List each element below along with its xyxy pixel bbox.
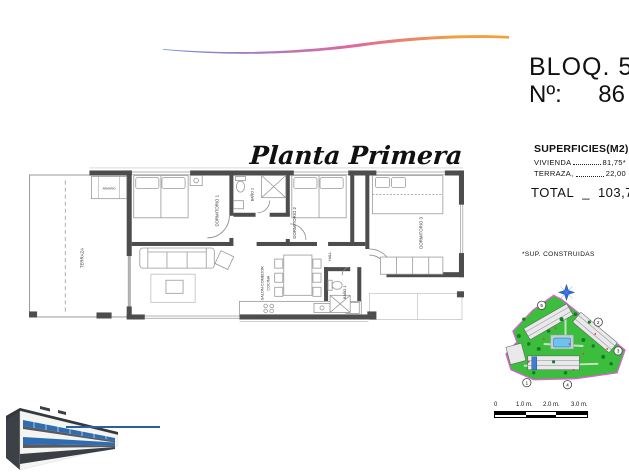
surfaces-title: SUPERFICIES(M2)	[534, 143, 626, 155]
room-label-terraza: TERRAZA	[79, 248, 84, 268]
render-accent-line	[66, 426, 160, 428]
dotted-leader	[576, 176, 604, 177]
block-badge-4: 4	[566, 382, 569, 388]
scale-label-1: 1.0 m.	[516, 402, 533, 408]
room-label-bano2: BAÑO 2	[250, 188, 255, 201]
room-label-hall: HALL	[328, 252, 332, 261]
surface-value: 81,75*	[603, 158, 627, 167]
surface-label: TERRAZA,	[534, 169, 574, 178]
render-roof-box	[40, 406, 50, 412]
block-badge-2: 2	[597, 320, 600, 326]
surfaces-footnote: *SUP. CONSTRUIDAS	[522, 251, 595, 258]
swoosh-curve	[163, 35, 509, 54]
render-roof-box	[58, 410, 66, 415]
block-label: BLOQ. 5	[529, 54, 625, 80]
compass-icon	[559, 284, 575, 300]
brochure-page: BLOQ. 5 Nº: 86 SUPERFICIES(M2) VIVIENDA …	[0, 0, 629, 476]
room-label-salon-line2: COCINA	[267, 275, 271, 290]
block-badge-5: 5	[540, 303, 543, 309]
building-render	[0, 392, 132, 476]
surface-row-terraza: TERRAZA, 22,00	[534, 169, 626, 178]
scale-label-2: 2.0 m.	[543, 402, 560, 408]
dotted-leader	[573, 164, 600, 165]
surfaces-panel: SUPERFICIES(M2) VIVIENDA 81,75* TERRAZA,…	[534, 143, 626, 178]
pool	[554, 338, 571, 347]
block-badge-3: 3	[617, 349, 620, 355]
room-label-armario: ARMARIO	[103, 187, 117, 191]
scale-label-3: 3.0 m.	[571, 402, 588, 408]
total-row: TOTAL _ 103,75	[531, 185, 625, 200]
surface-value: 22,00	[606, 169, 626, 178]
floor-plan: TERRAZA ARMARIO DORMITORIO 1 BAÑO 2 DORM…	[26, 160, 464, 334]
number-value: 86	[598, 82, 625, 107]
unit-header: BLOQ. 5 Nº: 86	[529, 54, 625, 107]
scale-bar-graphic	[494, 411, 588, 418]
total-value: 103,75	[598, 185, 629, 200]
scale-label-0: 0	[494, 402, 497, 408]
room-label-dormitorio2: DORMITORIO 2	[292, 206, 297, 238]
scale-bar: 0 1.0 m. 2.0 m. 3.0 m.	[492, 402, 596, 426]
total-label: TOTAL	[531, 185, 574, 200]
room-label-dormitorio1: DORMITORIO 1	[214, 194, 219, 226]
gradient-swoosh	[160, 26, 512, 62]
surface-label: VIVIENDA	[534, 158, 571, 167]
surface-row-vivienda: VIVIENDA 81,75*	[534, 158, 626, 167]
room-label-bano1: BAÑO 1	[342, 286, 347, 299]
total-separator: _	[582, 185, 590, 200]
room-label-salon-line1: SALON-COMEDOR	[261, 266, 265, 300]
room-label-dormitorio3: DORMITORIO 3	[419, 217, 424, 249]
site-map: 1 2 3 4 5	[504, 284, 628, 396]
number-label: Nº:	[529, 82, 562, 107]
block-badge-1: 1	[525, 380, 528, 386]
